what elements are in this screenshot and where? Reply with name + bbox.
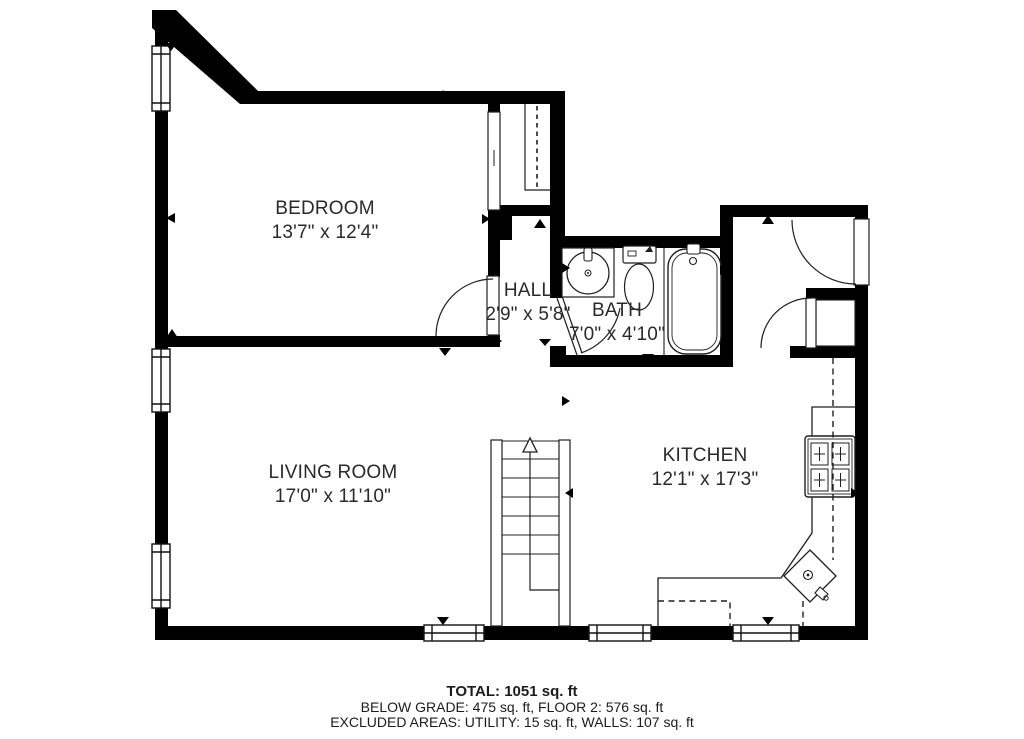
room-dimensions: 12'1" x 17'3" [652, 468, 759, 492]
room-label-hall: HALL 2'9" x 5'8" [485, 279, 570, 327]
wall-bath-right [720, 205, 733, 367]
room-name: HALL [485, 279, 570, 303]
wall-closet-right [550, 91, 565, 248]
interior-walls [155, 104, 868, 367]
floor-areas: BELOW GRADE: 475 sq. ft, FLOOR 2: 576 sq… [330, 700, 694, 715]
floor-plan-drawing [0, 0, 1024, 739]
dishwasher-dashed [658, 601, 803, 626]
window-bottom-1 [424, 625, 484, 641]
front-door [792, 219, 869, 285]
staircase [491, 438, 570, 626]
stair-rail-right [559, 440, 570, 626]
window-left-3 [152, 544, 170, 608]
window-bottom-3 [733, 625, 799, 641]
wall-hall-jog-top [500, 205, 553, 216]
kitchen-sink-icon [784, 550, 836, 602]
area-summary: TOTAL: 1051 sq. ft BELOW GRADE: 475 sq. … [330, 683, 694, 730]
wall-entry-top [720, 205, 868, 217]
wall-bedroom-living [155, 336, 500, 347]
wall-hall-jog-side [500, 216, 512, 240]
room-name: BATH [569, 299, 665, 323]
wall-top [245, 91, 565, 104]
room-dimensions: 17'0" x 11'10" [269, 485, 398, 509]
stair-direction-line [530, 450, 559, 590]
wall-nub-top [488, 104, 500, 112]
bathtub-icon [668, 244, 721, 354]
excluded-areas: EXCLUDED AREAS: UTILITY: 15 sq. ft, WALL… [330, 715, 694, 730]
stair-up-arrow-icon [523, 438, 537, 452]
room-name: KITCHEN [652, 444, 759, 468]
window-left-1 [152, 46, 170, 111]
wall-closet-bottom [790, 346, 868, 358]
window-left-2 [152, 349, 170, 412]
stair-rail-left [491, 440, 502, 626]
wall-bedroom-right [488, 210, 500, 277]
total-area: TOTAL: 1051 sq. ft [330, 683, 694, 700]
room-dimensions: 7'0" x 4'10" [569, 323, 665, 347]
room-name: BEDROOM [272, 197, 379, 221]
room-label-kitchen: KITCHEN 12'1" x 17'3" [652, 444, 759, 492]
floor-plan-canvas: BEDROOM 13'7" x 12'4" HALL 2'9" x 5'8" B… [0, 0, 1024, 739]
dimension-arrow-icons [165, 43, 859, 625]
closet-door [761, 298, 855, 348]
kitchen-fixtures [658, 358, 855, 626]
room-dimensions: 2'9" x 5'8" [485, 303, 570, 327]
room-dimensions: 13'7" x 12'4" [272, 221, 379, 245]
room-label-bath: BATH 7'0" x 4'10" [569, 299, 665, 347]
window-bottom-2 [589, 625, 651, 641]
partitions [488, 104, 550, 210]
room-name: LIVING ROOM [269, 461, 398, 485]
room-label-bedroom: BEDROOM 13'7" x 12'4" [272, 197, 379, 245]
room-label-living-room: LIVING ROOM 17'0" x 11'10" [269, 461, 398, 509]
stove-icon [805, 436, 855, 497]
